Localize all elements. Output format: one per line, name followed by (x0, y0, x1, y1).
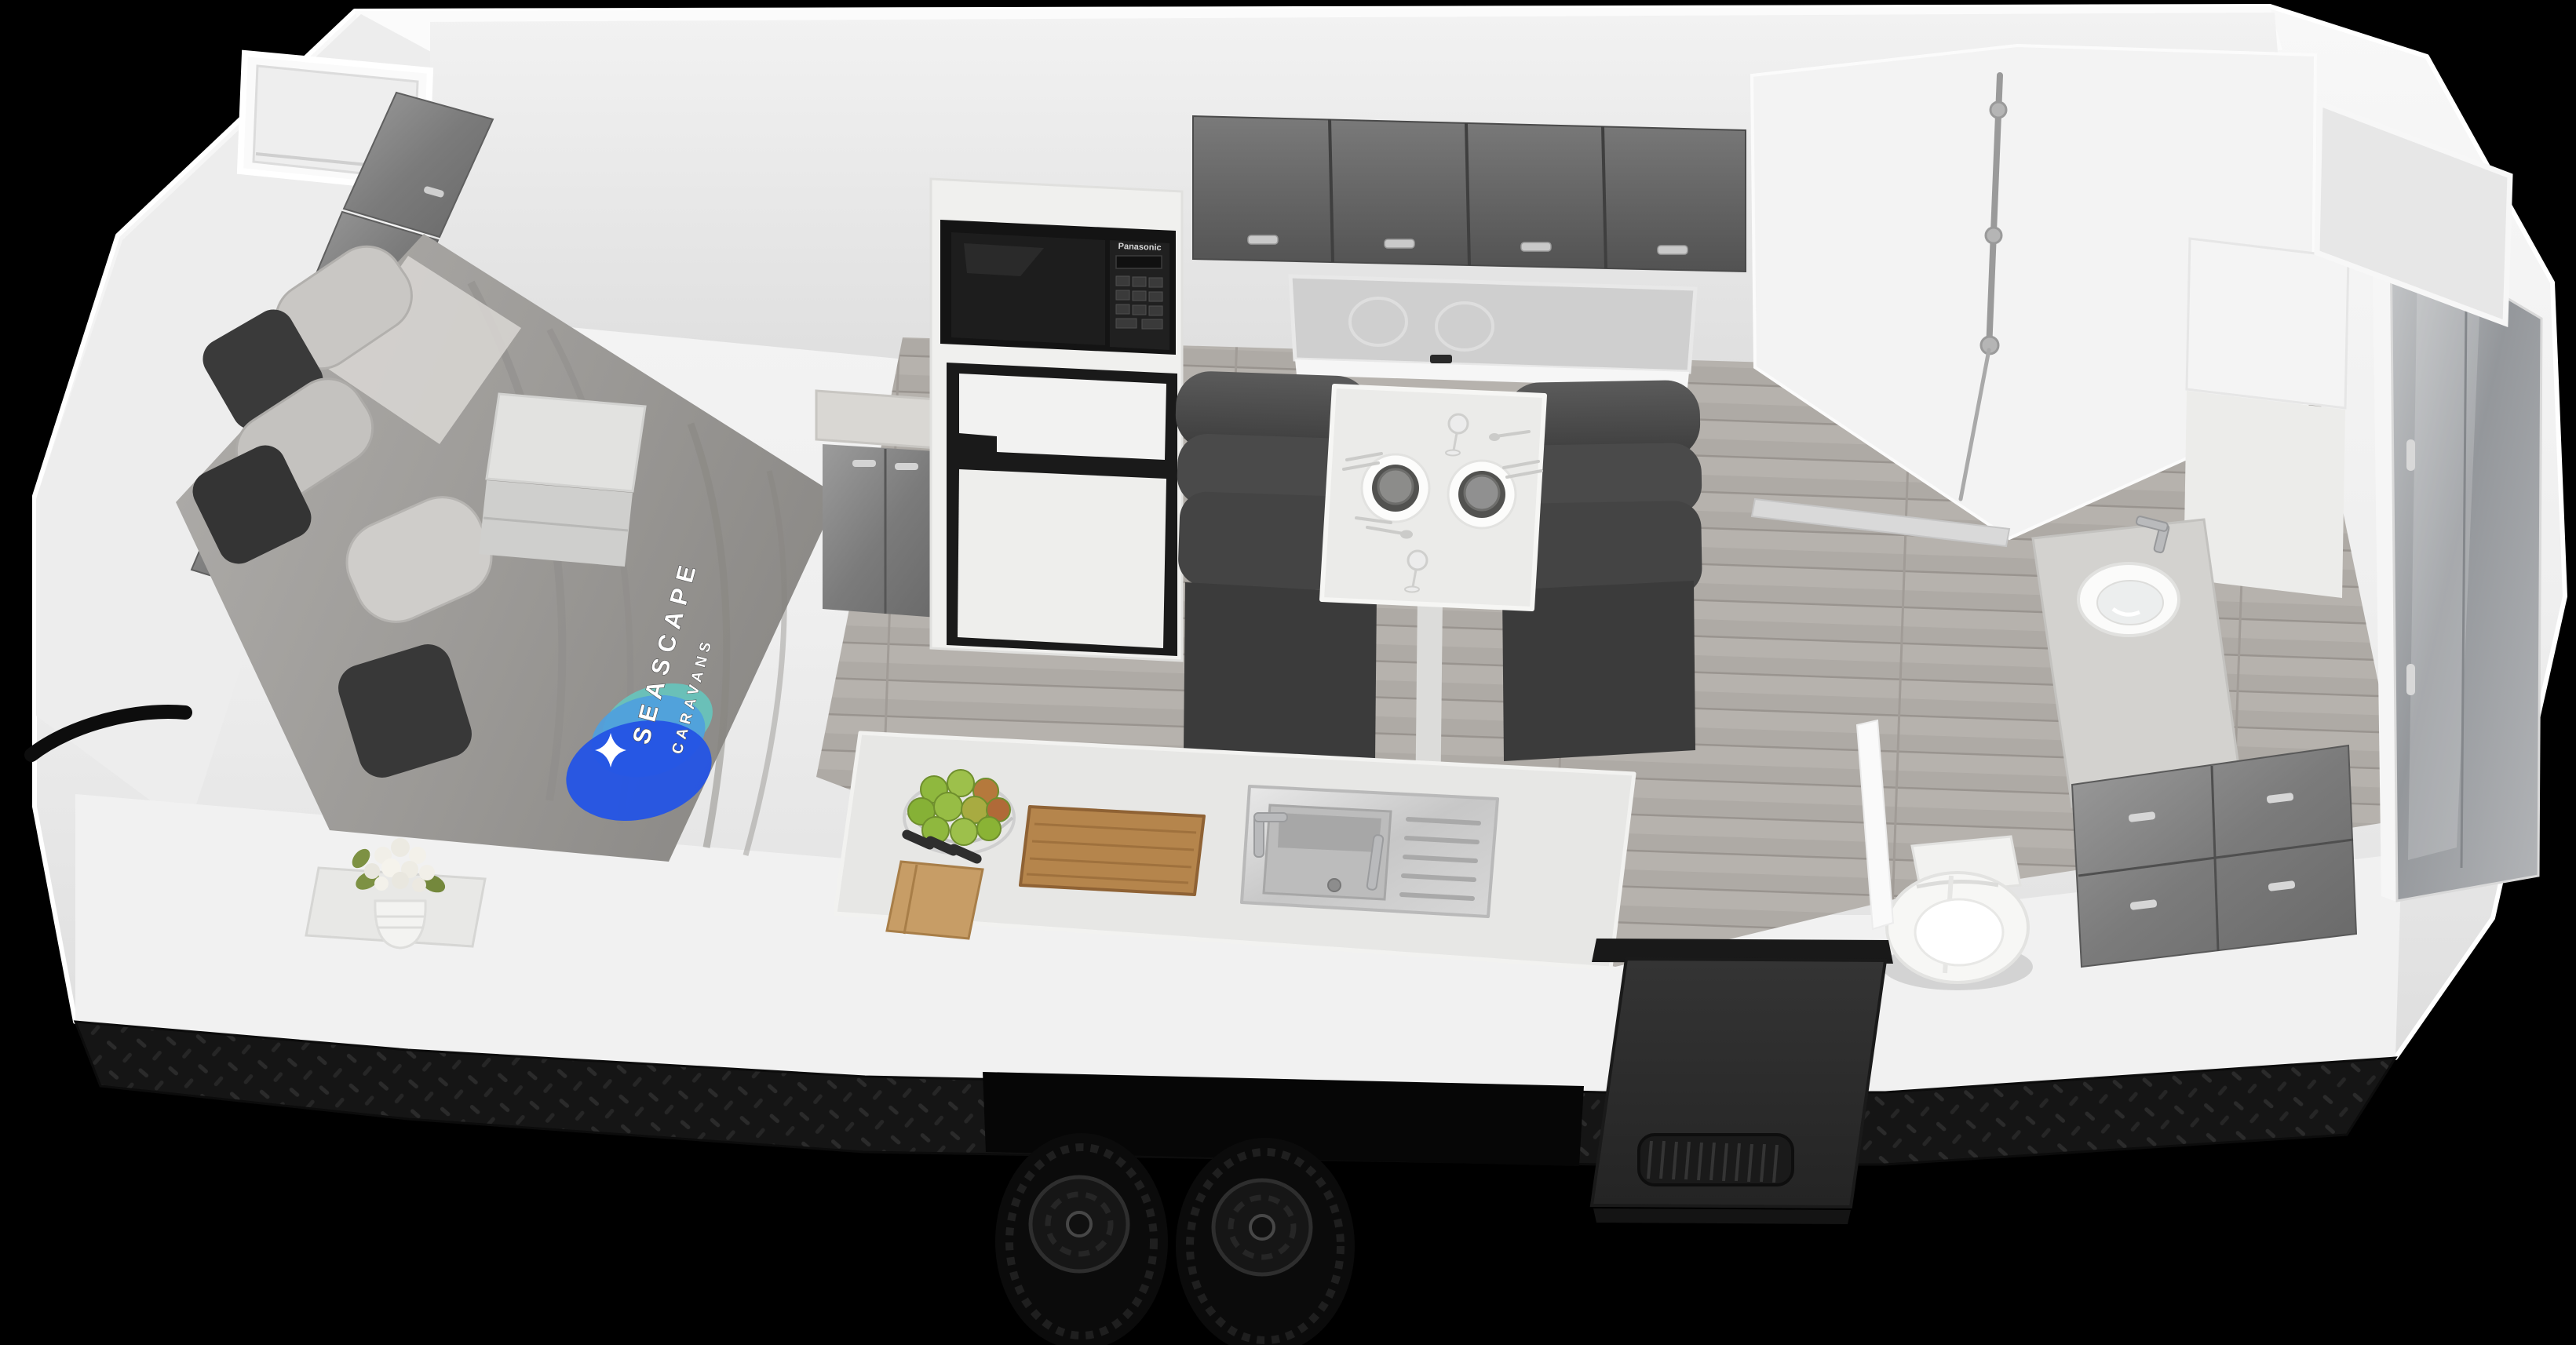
cabinet-handle (852, 460, 876, 467)
cupboard-handle (1248, 235, 1278, 244)
window-latch (1430, 355, 1452, 363)
microwave: Panasonic (940, 220, 1176, 355)
wardrobe-handle (2406, 664, 2415, 695)
bowl (1465, 476, 1499, 510)
hub-cap (1067, 1212, 1091, 1236)
caravan-cutaway-render: SEASCAPE CARAVANS (0, 0, 2576, 1345)
appliance-column: Panasonic (931, 179, 1182, 661)
bathroom-zone (1752, 46, 2541, 990)
sink-drain (1328, 879, 1341, 891)
chopping-board (1020, 807, 1204, 895)
kitchen-bench (835, 733, 1634, 968)
cupboard-handle (1521, 242, 1551, 251)
render-canvas: SEASCAPE CARAVANS (0, 0, 2576, 1345)
bedfoot-dresser (479, 394, 645, 567)
bowl (1378, 469, 1413, 504)
cabinet-handle (895, 463, 918, 470)
fridge-freezer (947, 363, 1177, 656)
overhead-cupboards (1193, 116, 1746, 272)
wheel-rear (1176, 1138, 1355, 1345)
bedside-cabinets (816, 391, 948, 618)
microwave-brand-label: Panasonic (1118, 242, 1161, 253)
lounge-front-face (1184, 582, 1377, 763)
splashback-window (1290, 276, 1695, 388)
door-bottom-strip (1593, 1208, 1851, 1224)
fridge-door (958, 469, 1166, 648)
cupboard-handle (1658, 246, 1688, 254)
entry-door (1592, 939, 1893, 1224)
wheel-front (995, 1133, 1168, 1345)
microwave-display (1116, 256, 1162, 268)
sink (1242, 786, 1498, 917)
wardrobe-handle (2406, 439, 2415, 471)
mirrored-wardrobe (2372, 221, 2541, 902)
hub-cap (1250, 1216, 1274, 1239)
cupboard-handle (1385, 239, 1414, 248)
